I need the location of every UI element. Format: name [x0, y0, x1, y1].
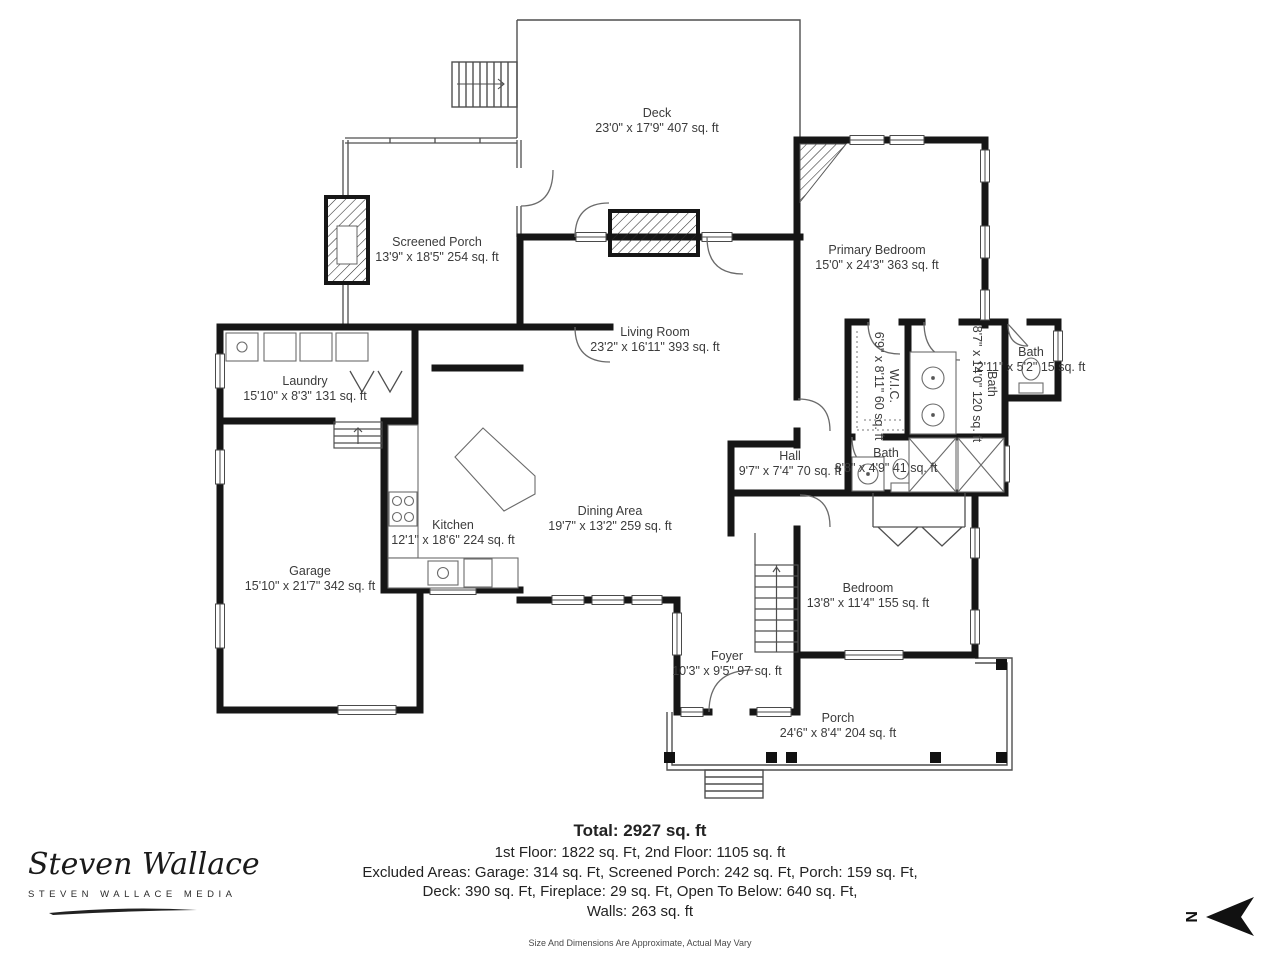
- laundry-cabinet: [336, 333, 368, 361]
- open-to-below-hatch: [800, 144, 846, 202]
- room-label-hall-bath: Bath 8'8" x 4'9" 41 sq. ft: [835, 446, 938, 476]
- room-label-deck: Deck 23'0" x 17'9" 407 sq. ft: [595, 106, 718, 136]
- brand-script-name: Steven Wallace: [28, 848, 218, 882]
- room-label-primary-bath: Bath 8'7" x 14'0" 120 sq. ft: [969, 326, 999, 443]
- total-area: Total: 2927 sq. ft: [0, 821, 1280, 841]
- room-label-hall: Hall 9'7" x 7'4" 70 sq. ft: [739, 449, 842, 479]
- room-label-bedroom: Bedroom 13'8" x 11'4" 155 sq. ft: [807, 581, 930, 611]
- brand-swoosh-icon: [28, 903, 218, 921]
- kitchen-island: [455, 428, 535, 511]
- room-label-wic: W.I.C. 6'9" x 8'11" 60 sq. ft: [871, 332, 901, 441]
- room-label-screened-porch: Screened Porch 13'9" x 18'5" 254 sq. ft: [375, 235, 498, 265]
- room-label-small-bath: Bath 2'11" x 5'2" 15 sq. ft: [977, 345, 1086, 375]
- washer-icon: [264, 333, 296, 361]
- room-label-garage: Garage 15'10" x 21'7" 342 sq. ft: [245, 564, 375, 594]
- room-label-foyer: Foyer 10'3" x 9'5" 97 sq. ft: [672, 649, 782, 679]
- fireplace-screened-porch: [326, 197, 368, 283]
- dishwasher-icon: [464, 559, 492, 587]
- brand-logo: Steven Wallace STEVEN WALLACE MEDIA: [28, 848, 218, 921]
- garage-steps: [334, 422, 382, 448]
- room-label-primary-bedroom: Primary Bedroom 15'0" x 24'3" 363 sq. ft: [815, 243, 938, 273]
- room-label-kitchen: Kitchen 12'1" x 18'6" 224 sq. ft: [391, 518, 514, 548]
- disclaimer-text: Size And Dimensions Are Approximate, Act…: [0, 938, 1280, 948]
- room-label-laundry: Laundry 15'10" x 8'3" 131 sq. ft: [243, 374, 366, 404]
- floorplan-page: N Deck 23'0" x 17'9" 407 sq. ft Screened…: [0, 0, 1280, 960]
- laundry-sink-icon: [226, 333, 258, 361]
- dryer-icon: [300, 333, 332, 361]
- room-label-living-room: Living Room 23'2" x 16'11" 393 sq. ft: [590, 325, 719, 355]
- kitchen-counters: [388, 425, 535, 588]
- room-label-dining-area: Dining Area 19'7" x 13'2" 259 sq. ft: [548, 504, 671, 534]
- double-vanity: [910, 352, 956, 434]
- brand-subtitle: STEVEN WALLACE MEDIA: [28, 889, 218, 900]
- foyer-stairs: [755, 533, 798, 652]
- laundry-appliances: [226, 333, 368, 361]
- floorplan-drawing: N: [0, 0, 1280, 960]
- room-label-porch: Porch 24'6" x 8'4" 204 sq. ft: [780, 711, 897, 741]
- kitchen-sink-icon: [428, 561, 458, 585]
- shower-icon: [958, 438, 1004, 492]
- fireplace-living-room: [610, 211, 698, 255]
